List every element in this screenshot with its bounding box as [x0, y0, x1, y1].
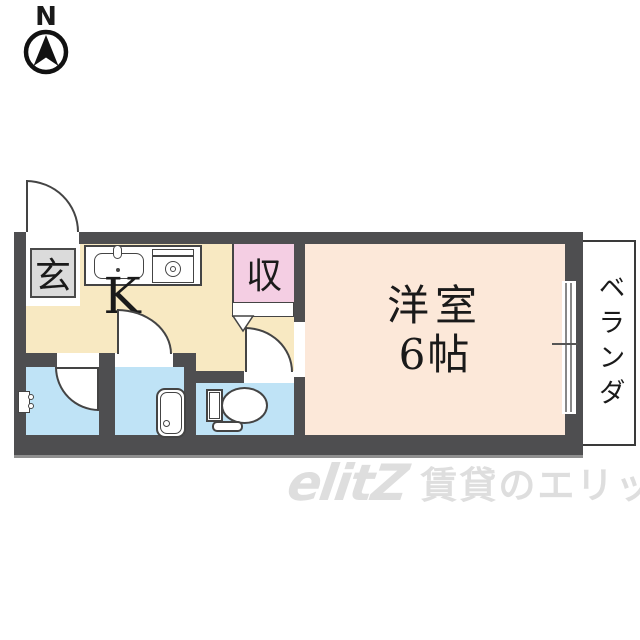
wall-segment — [26, 353, 57, 367]
western-room-label: 洋室 6帖 — [305, 282, 565, 380]
wall-segment — [99, 353, 115, 435]
toilet-tank-inner — [209, 392, 220, 419]
window-pane-line — [570, 283, 572, 412]
bathtub-inner-line — [160, 392, 182, 434]
toilet-base-icon — [212, 421, 243, 432]
window-pane-line — [565, 283, 567, 412]
watermark-company: 賃貸のエリッツ — [420, 465, 640, 508]
watermark-logo: elitZ — [284, 458, 409, 508]
washroom-doorway-opening — [57, 353, 99, 367]
compass-north-label: N — [30, 4, 62, 30]
bathtub-drain-circle — [163, 420, 170, 427]
western-room-size: 6帖 — [305, 330, 565, 380]
stove-top-line — [152, 255, 194, 257]
washer-tap-knob — [28, 403, 34, 409]
toilet-bowl-icon — [221, 387, 268, 424]
closet-label: 収 — [232, 244, 294, 302]
floor-plan-canvas: N ベランダ 玄 K 収 — [0, 0, 640, 640]
watermark: elitZ 賃貸のエリッツ — [288, 448, 640, 508]
north-arrow-icon — [22, 28, 70, 76]
entrance-door-arc-icon — [26, 180, 79, 232]
faucet-icon — [113, 245, 122, 259]
bathroom-doorway-opening — [115, 353, 173, 367]
toilet-doorway-opening — [244, 371, 294, 383]
wall-segment — [196, 371, 244, 383]
veranda-label: ベランダ — [584, 248, 634, 438]
western-room-doorway-opening — [294, 322, 305, 377]
entrance-label: 玄 — [30, 248, 76, 298]
western-room-name: 洋室 — [305, 282, 565, 330]
burner-inner-circle — [170, 266, 176, 272]
washer-tap-knob — [28, 394, 34, 400]
window-latch-tick — [552, 343, 578, 345]
